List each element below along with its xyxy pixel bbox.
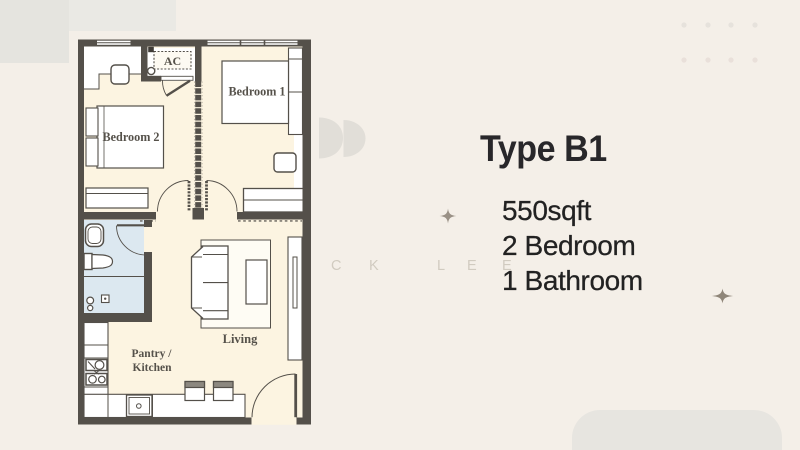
svg-text:AC: AC [164, 54, 181, 68]
svg-text:Bedroom 2: Bedroom 2 [103, 130, 160, 144]
svg-text:Bedroom 1: Bedroom 1 [229, 85, 286, 99]
svg-text:Pantry /: Pantry / [132, 348, 173, 360]
svg-text:Kitchen: Kitchen [133, 362, 173, 374]
svg-text:Living: Living [223, 332, 258, 346]
